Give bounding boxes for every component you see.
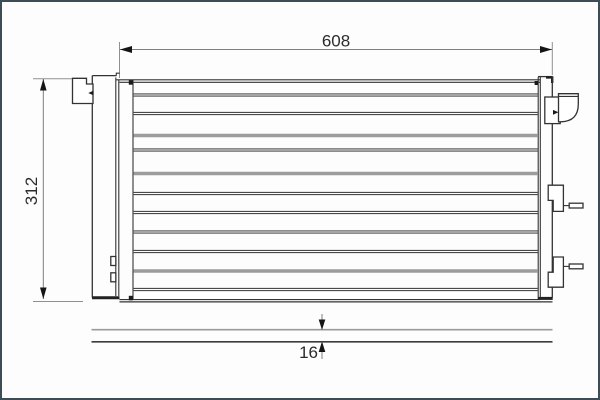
lower-connector-body <box>548 257 563 287</box>
thickness-dimension-label: 16 <box>299 343 318 362</box>
thickness-arrow-up-icon <box>319 341 326 352</box>
core <box>116 77 553 302</box>
upper-connector <box>548 185 583 211</box>
width-dimension-label: 608 <box>322 32 350 51</box>
thickness-arrow-down-icon <box>319 320 326 331</box>
condenser-front-view <box>73 73 584 302</box>
lower-connector <box>548 257 583 287</box>
right-bracket-flag <box>559 94 579 122</box>
dimension-thickness: 16 <box>299 314 325 362</box>
left-tank-notch-upper <box>111 257 116 266</box>
dimension-width: 608 <box>120 32 553 79</box>
height-dimension-label: 312 <box>22 177 41 205</box>
left-bracket-outline <box>73 78 94 103</box>
height-arrow-top-icon <box>40 79 47 91</box>
left-mounting-bracket <box>73 78 94 103</box>
condenser-side-view <box>92 330 553 342</box>
core-corner-mark-top-right <box>535 81 539 85</box>
left-tank <box>92 73 120 298</box>
core-fin-lines <box>134 94 538 291</box>
upper-connector-pin <box>569 203 583 208</box>
technical-drawing-canvas: 608 312 <box>0 0 600 400</box>
height-arrow-bottom-icon <box>40 288 47 300</box>
width-arrow-left-icon <box>120 46 132 53</box>
core-corner-mark-top-left <box>129 80 133 85</box>
dimension-height: 312 <box>22 79 83 302</box>
lower-connector-pin <box>569 264 583 269</box>
right-tank-top-corner <box>546 77 552 83</box>
upper-connector-body <box>548 185 563 211</box>
left-tank-notch-lower <box>111 273 116 282</box>
radiator-technical-drawing: 608 312 <box>2 2 598 398</box>
right-mounting-bracket <box>545 94 579 124</box>
width-arrow-right-icon <box>540 46 552 53</box>
core-corner-mark-bottom-left <box>129 296 133 301</box>
